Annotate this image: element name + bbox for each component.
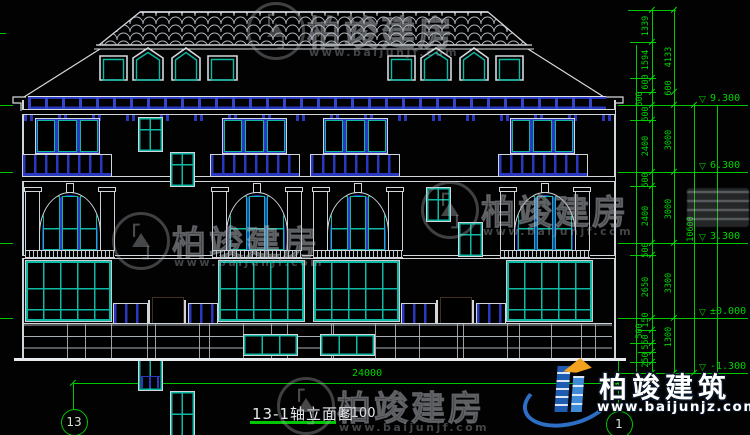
brand-logo-url: www.baijunjz.com: [597, 399, 750, 415]
dimension-label: 3300: [664, 273, 674, 293]
elevation-level-line: [696, 318, 748, 319]
dimension-label: 500: [641, 242, 651, 257]
dimension-label: 1594: [641, 50, 651, 70]
dimension-label: 600: [641, 74, 651, 89]
dimension-label: 2400: [641, 136, 651, 156]
elevation-triangle-icon: ▽: [699, 309, 706, 318]
elevation-level-line: [696, 105, 748, 106]
dimension-label: 600: [664, 80, 674, 95]
dimension-label: 1300: [664, 327, 674, 347]
dimension-extension-line: [618, 105, 698, 106]
axis-bubble-1-label: 1: [615, 417, 623, 431]
left-level-stub: [0, 33, 6, 34]
dimension-label: 600: [641, 106, 651, 121]
left-level-stub: [0, 105, 13, 106]
elevation-triangle-icon: ▽: [699, 234, 706, 243]
dimension-label: 550: [641, 334, 651, 349]
axis-bubble-13: 13: [61, 409, 88, 435]
elevation-triangle-icon: ▽: [699, 163, 706, 172]
dimension-label: 4133: [664, 47, 674, 67]
dimension-label: 600: [635, 91, 645, 106]
dimension-label: 2650: [641, 277, 651, 297]
dimension-extension-line: [618, 172, 698, 173]
elevation-value: 3.300: [710, 231, 740, 242]
watermark-info-box: [687, 188, 749, 227]
left-level-stub: [0, 318, 13, 319]
axis-bubble-13-label: 13: [66, 415, 81, 429]
dimension-label: 3000: [664, 199, 674, 219]
elevation-level-line: [696, 243, 748, 244]
dimension-extension-line: [618, 318, 698, 319]
left-level-stub: [0, 172, 13, 173]
dimension-label: 3000: [664, 130, 674, 150]
dimension-label: 1339: [641, 16, 651, 36]
elevation-value: 9.300: [710, 93, 740, 104]
title-underline: [250, 421, 336, 424]
dimension-extension-line: [618, 243, 698, 244]
left-level-stub: [0, 243, 13, 244]
elevation-value: 6.300: [710, 160, 740, 171]
elevation-triangle-icon: ▽: [699, 96, 706, 105]
elevation-level-line: [696, 172, 748, 173]
elevation-value: ±0.000: [710, 306, 746, 317]
dimension-label: 2400: [641, 206, 651, 226]
dimension-label: 600: [641, 172, 651, 187]
cad-elevation-drawing: 1339159460060060024006002400500265015050…: [0, 0, 750, 435]
